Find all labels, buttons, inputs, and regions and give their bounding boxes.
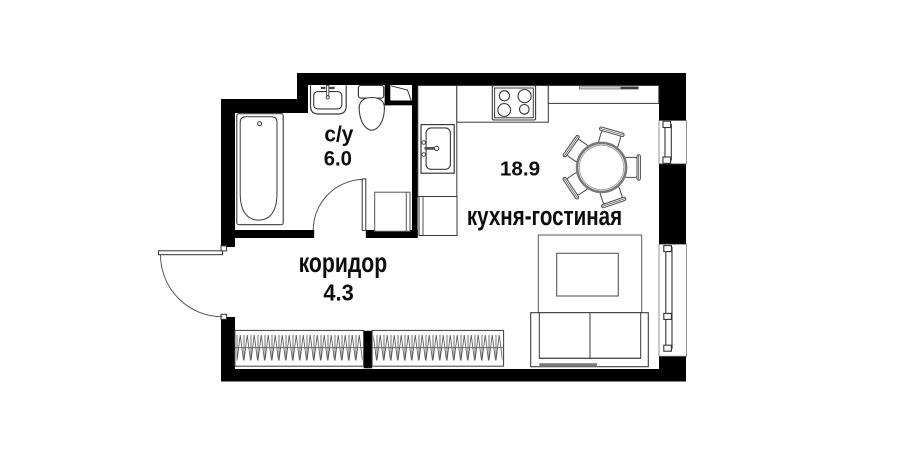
svg-text:6.0: 6.0 bbox=[324, 147, 352, 171]
svg-text:18.9: 18.9 bbox=[500, 157, 540, 180]
svg-text:с/у: с/у bbox=[324, 122, 354, 147]
svg-text:4.3: 4.3 bbox=[323, 280, 353, 306]
svg-text:кухня-гостиная: кухня-гостиная bbox=[467, 201, 622, 231]
svg-text:коридор: коридор bbox=[299, 247, 388, 278]
